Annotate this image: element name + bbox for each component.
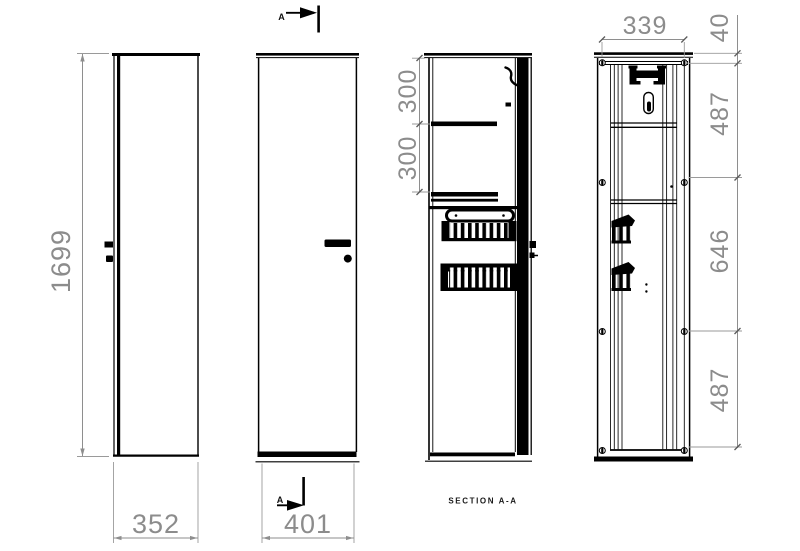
screw-hole <box>599 448 605 454</box>
section-cut-top-label: A <box>278 12 285 22</box>
shelf-dim-label-top: 300 <box>394 69 422 114</box>
back-width-dim-label: 339 <box>623 12 668 40</box>
front-width-dim-label: 401 <box>284 509 332 539</box>
upper-basket-right-post <box>509 221 517 241</box>
section-view-title: SECTION A-A <box>448 497 517 506</box>
door-hinge-tab <box>506 103 512 107</box>
section-door-core <box>517 58 529 455</box>
lower-basket-right-post <box>510 264 518 292</box>
rail-pin <box>670 185 673 188</box>
back-lower-dim-label: 487 <box>706 368 734 413</box>
back-upper-dim-label: 487 <box>706 91 734 136</box>
side-top-panel <box>112 53 200 56</box>
back-middle-dim-label: 646 <box>706 229 734 274</box>
screw-hole <box>681 180 687 186</box>
front-bottom-panel <box>258 452 357 458</box>
shelf-lower-underside <box>431 199 498 202</box>
section-bottom-panel <box>430 453 515 457</box>
lower-basket <box>441 264 518 292</box>
screw-hole <box>599 180 605 186</box>
lower-basket-rail <box>441 264 518 268</box>
section-top-panel <box>424 53 532 56</box>
upper-basket-screw-right <box>502 214 505 217</box>
screw-hole <box>681 60 687 66</box>
upper-basket-bottom <box>442 238 517 241</box>
lower-basket-left-post <box>441 264 449 292</box>
front-lock-knob <box>344 255 352 263</box>
shelf-upper <box>431 122 497 127</box>
screw-hole <box>599 329 605 335</box>
cad-drawing-page: 1699 352 A A <box>0 0 800 551</box>
back-bottom-panel <box>594 457 693 462</box>
back-top-offset-label: 40 <box>706 13 734 43</box>
keyhole-slot-icon <box>644 93 654 114</box>
shelf-dim-label-bottom: 300 <box>394 136 422 181</box>
shelf-lower <box>431 192 498 197</box>
front-top-panel <box>256 53 359 56</box>
lower-basket-wires <box>449 270 509 288</box>
center-pin-bottom <box>645 290 647 292</box>
lower-basket-bottom <box>441 288 518 292</box>
back-top-panel <box>594 52 693 55</box>
upper-basket-screw-left <box>455 214 458 217</box>
center-pin-top <box>645 283 647 285</box>
depth-dim-label: 352 <box>132 509 180 539</box>
upper-basket-wires <box>450 223 508 239</box>
screw-hole <box>599 60 605 66</box>
side-handle-bar <box>105 242 114 248</box>
height-dim-label: 1699 <box>46 229 76 293</box>
upper-basket-left-post <box>442 221 450 241</box>
side-handle-knob <box>106 256 113 263</box>
side-door-edge <box>117 56 120 455</box>
section-cut-bottom-label: A <box>277 495 284 505</box>
section-handle-tab <box>530 241 537 248</box>
technical-drawing-canvas: 1699 352 A A <box>0 0 800 551</box>
screw-hole <box>681 448 687 454</box>
screw-hole <box>681 329 687 335</box>
front-door-handle <box>325 240 352 248</box>
